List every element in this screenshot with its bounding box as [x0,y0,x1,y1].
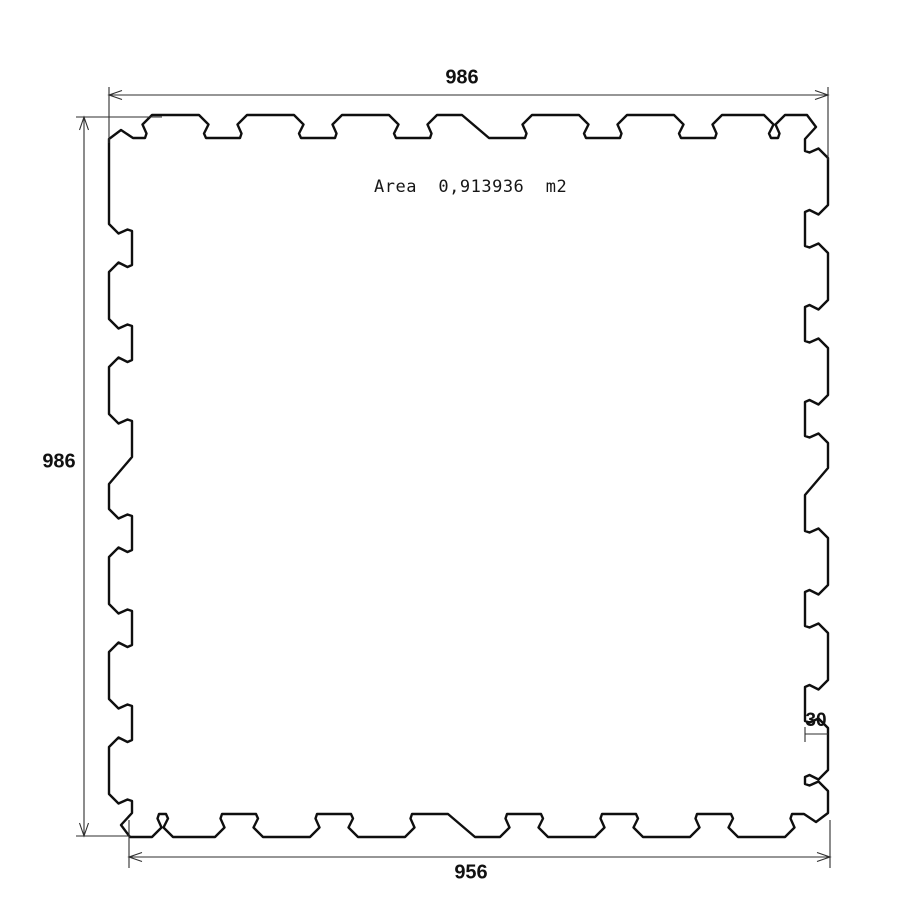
dim-label-top: 986 [445,67,478,90]
drawing-canvas: 986 986 956 30 Area 0,913936 m2 [0,0,900,900]
dim-label-tooth-depth: 30 [805,710,826,732]
area-label: Area 0,913936 m2 [374,177,567,197]
tile-drawing-svg [0,0,900,900]
dim-label-left: 986 [42,451,75,474]
tile-outline [109,115,828,837]
dim-label-bottom: 956 [454,862,487,885]
